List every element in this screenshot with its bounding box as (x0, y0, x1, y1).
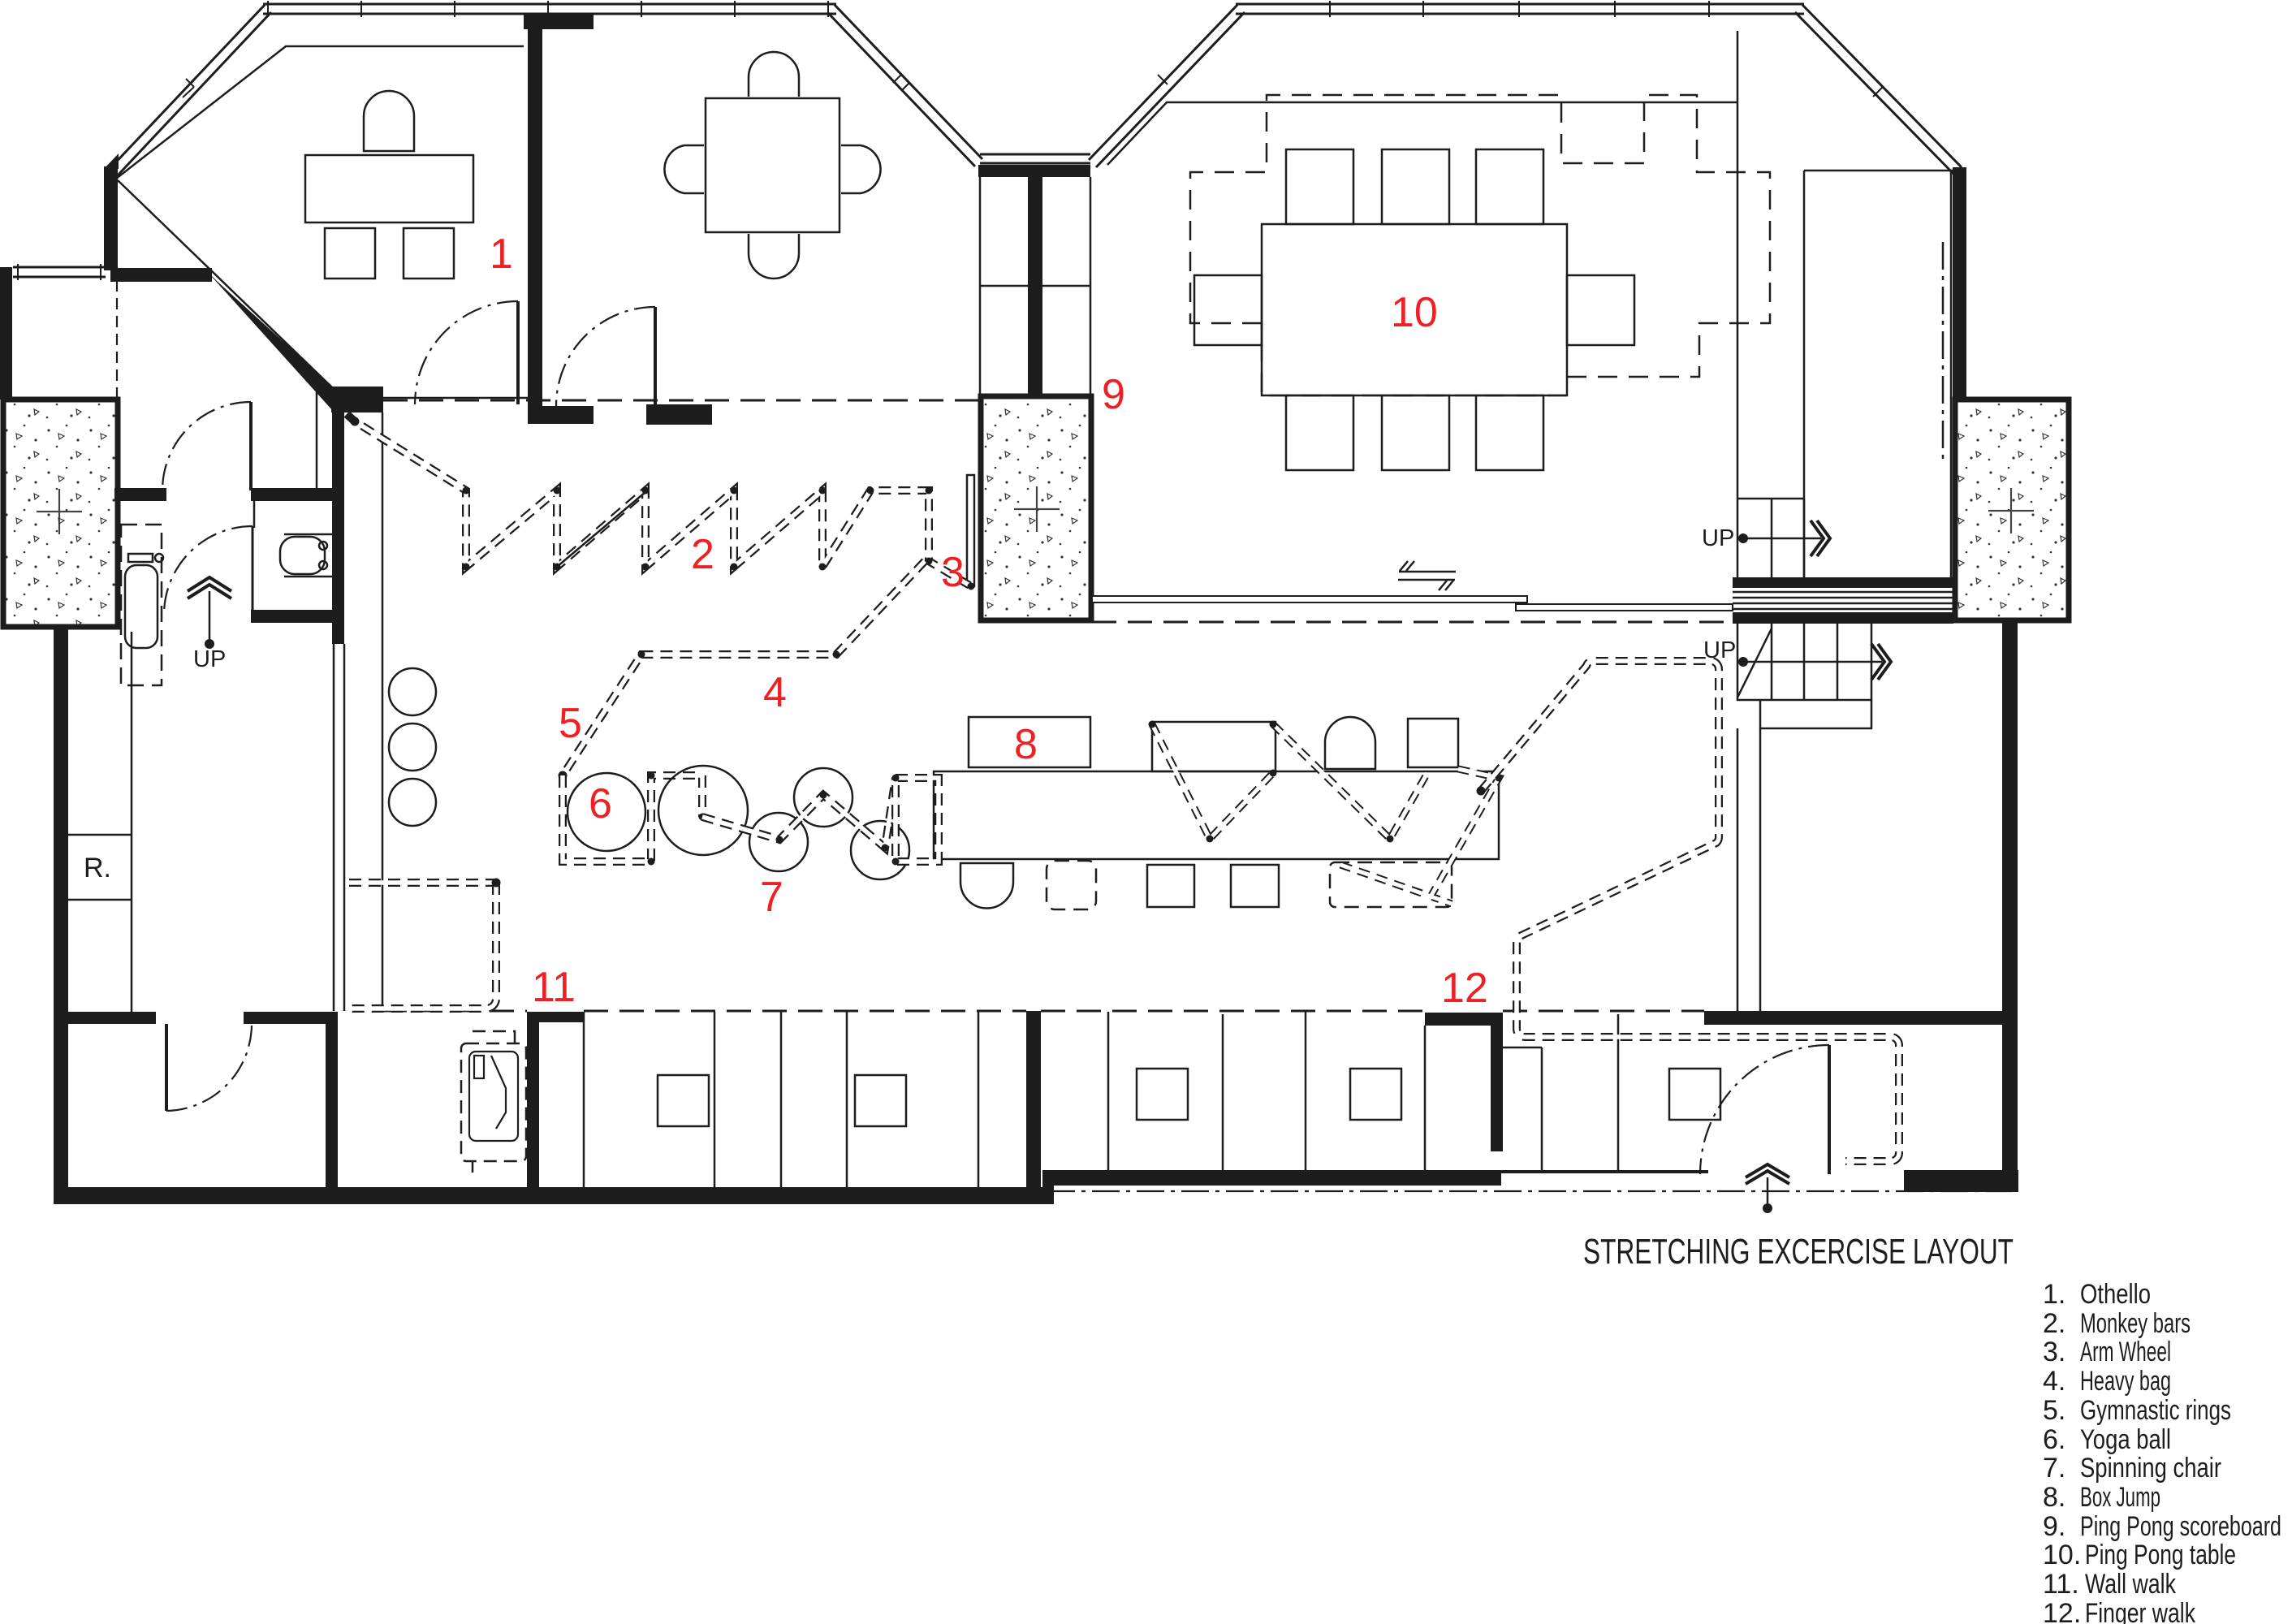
svg-text:8.: 8. (2043, 1482, 2065, 1513)
svg-text:2.: 2. (2043, 1308, 2065, 1339)
svg-text:10.: 10. (2043, 1540, 2081, 1570)
svg-text:11.: 11. (2043, 1569, 2079, 1600)
svg-text:5: 5 (559, 700, 582, 747)
svg-text:6.: 6. (2043, 1424, 2065, 1455)
svg-text:Wall walk: Wall walk (2085, 1569, 2177, 1600)
svg-text:5.: 5. (2043, 1395, 2065, 1426)
svg-text:12.: 12. (2043, 1598, 2081, 1624)
svg-text:6: 6 (589, 780, 612, 827)
svg-text:1: 1 (490, 231, 513, 278)
svg-text:R.: R. (84, 853, 111, 883)
svg-text:Yoga ball: Yoga ball (2080, 1424, 2171, 1455)
svg-text:3.: 3. (2043, 1337, 2065, 1367)
svg-text:Heavy bag: Heavy bag (2080, 1366, 2171, 1397)
svg-text:STRETCHING EXCERCISE LAYOUT: STRETCHING EXCERCISE LAYOUT (1583, 1232, 2014, 1272)
svg-text:2: 2 (691, 531, 714, 578)
svg-text:4: 4 (763, 669, 787, 716)
svg-text:8: 8 (1014, 721, 1038, 768)
svg-text:Othello: Othello (2080, 1279, 2151, 1310)
svg-text:1.: 1. (2043, 1279, 2065, 1310)
svg-text:9.: 9. (2043, 1511, 2065, 1542)
svg-text:Arm Wheel: Arm Wheel (2080, 1337, 2171, 1367)
svg-text:Monkey bars: Monkey bars (2080, 1308, 2191, 1339)
svg-text:Box Jump: Box Jump (2080, 1482, 2160, 1513)
svg-text:11: 11 (532, 964, 576, 1011)
svg-text:12: 12 (1441, 965, 1488, 1012)
svg-text:9: 9 (1102, 371, 1125, 418)
svg-text:10: 10 (1391, 289, 1438, 336)
svg-text:Spinning chair: Spinning chair (2080, 1453, 2221, 1484)
svg-text:3: 3 (941, 549, 965, 596)
svg-text:Ping Pong scoreboard: Ping Pong scoreboard (2080, 1511, 2281, 1542)
svg-text:UP: UP (1702, 525, 1734, 551)
svg-text:Finger walk: Finger walk (2085, 1598, 2196, 1624)
svg-text:4.: 4. (2043, 1366, 2065, 1397)
svg-text:7: 7 (760, 874, 783, 921)
svg-text:Ping Pong table: Ping Pong table (2085, 1540, 2236, 1570)
svg-text:Gymnastic rings: Gymnastic rings (2080, 1395, 2231, 1426)
svg-text:7.: 7. (2043, 1453, 2065, 1484)
svg-text:UP: UP (193, 646, 226, 672)
